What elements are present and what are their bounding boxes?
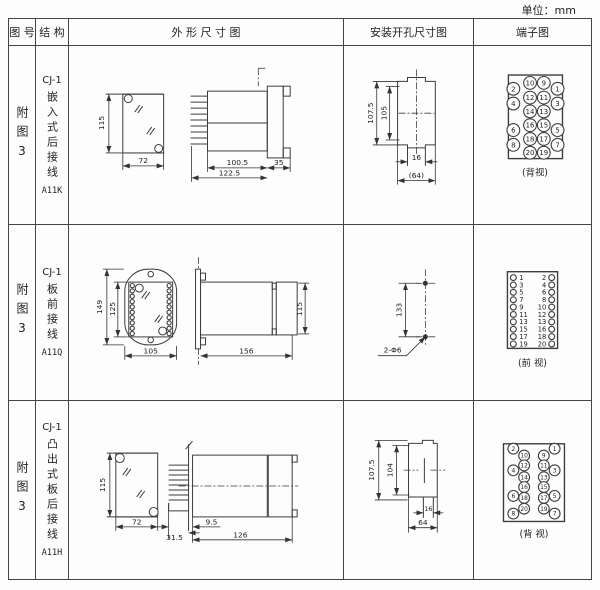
- terminal-pin: [130, 326, 134, 330]
- terminal-number: 17: [539, 135, 548, 143]
- terminal-number: 11: [539, 94, 548, 102]
- dim-label: 100.5: [227, 157, 249, 166]
- terminal-pin: 13: [537, 105, 550, 118]
- outline-drawing-a11h: 115 72: [69, 401, 343, 579]
- dim-label: 107.5: [366, 102, 375, 124]
- terminal-pin: 11: [537, 91, 550, 104]
- dim-label: 64: [418, 518, 428, 527]
- terminal-pin: 17: [537, 132, 550, 145]
- terminal-number: 1: [555, 85, 559, 93]
- dimension-156: 156: [201, 334, 293, 359]
- dim-label: 122.5: [219, 168, 241, 177]
- dim-label: 156: [239, 346, 254, 355]
- terminal-pin: [549, 318, 555, 324]
- terminal-diagram-a11q: (前 视) 1357911131517192468101213161820: [474, 225, 591, 401]
- terminal-pin: 18: [519, 492, 530, 503]
- terminal-number: 2: [511, 85, 515, 93]
- terminal-pin: [510, 296, 516, 302]
- terminal-pin: [167, 294, 171, 298]
- terminal-pin: 18: [524, 132, 537, 145]
- terminal-pin: [549, 282, 555, 288]
- terminal-number: 19: [519, 340, 528, 348]
- dim-label: 125: [108, 301, 117, 316]
- terminal-pin: [130, 299, 134, 303]
- terminal-pin: [130, 310, 134, 314]
- outline-row2: 149 125 105: [69, 225, 344, 401]
- outline-row1: 115 72: [69, 46, 344, 225]
- terminal-number: 8: [511, 512, 515, 518]
- header-mounting: 安装开孔尺寸图: [344, 19, 474, 46]
- terminal-number: 13: [540, 475, 548, 481]
- terminal-number: 13: [539, 107, 548, 115]
- terminal-number: 3: [553, 468, 557, 474]
- terminal-pin: 13: [538, 472, 549, 483]
- terminal-number: 12: [520, 464, 528, 470]
- terminal-diagram-a11k: (背视) 1091211141316151817201921436587: [474, 46, 591, 225]
- terminal-number: 16: [526, 121, 535, 129]
- terminal-pin: [130, 288, 134, 292]
- terminal-number: 2: [511, 447, 515, 453]
- terminal-number: 6: [511, 126, 515, 134]
- terminal-pin: 17: [538, 492, 549, 503]
- model-code: A11K: [42, 186, 62, 196]
- structure-name: 板前接线: [47, 283, 58, 343]
- terminal-pin: 8: [508, 508, 519, 519]
- terminal-pin: [549, 326, 555, 332]
- terminal-pin: [130, 331, 134, 335]
- terminal-number: 5: [555, 126, 559, 134]
- dim-label: 149: [95, 299, 104, 314]
- mounting-row2: 133 2-Φ6: [344, 225, 474, 401]
- dimension-115: 115: [97, 94, 109, 153]
- series-label: CJ-1: [42, 422, 62, 433]
- terminal-pin: 12: [524, 91, 537, 104]
- terminal-number: 11: [540, 464, 548, 470]
- terminal-number: 14: [520, 475, 528, 481]
- terminal-pin: 9: [538, 450, 549, 461]
- terminal-pin: 5: [551, 123, 564, 136]
- terminal-pin: [167, 310, 171, 314]
- dim-label: 16: [412, 152, 422, 161]
- terminal-pin: 15: [537, 118, 550, 131]
- dim-label: 72: [132, 517, 142, 526]
- terminal-pin: 16: [519, 482, 530, 493]
- terminal-pin: 20: [519, 503, 530, 514]
- dimension-35: 35: [267, 157, 290, 171]
- terminal-pin: [167, 288, 171, 292]
- terminal-pin: [130, 320, 134, 324]
- terminal-row3: (背 视) 2468135710121416182091113151719: [474, 401, 591, 579]
- dimension-105: 105: [380, 86, 400, 140]
- hole-callout: 2-Φ6: [378, 336, 426, 355]
- dimension-16: 16: [396, 152, 438, 161]
- terminal-pin: [510, 311, 516, 317]
- terminal-number: 10: [526, 79, 535, 87]
- terminal-pin: 20: [524, 146, 537, 159]
- model-code: A11H: [42, 548, 62, 558]
- terminal-number: 20: [526, 149, 535, 157]
- dimension-9-5: 9.5: [193, 517, 221, 526]
- dimension-31-5: 31.5: [158, 503, 200, 542]
- terminal-pin: [549, 341, 555, 347]
- fig-no-row3: 附图3: [9, 401, 36, 579]
- dim-label: 72: [138, 155, 148, 164]
- view-label: (背 视): [520, 528, 549, 540]
- dimension-115: 115: [98, 453, 110, 517]
- outline-drawing-a11q: 149 125 105: [69, 225, 343, 401]
- terminal-number: 1: [553, 447, 557, 453]
- terminal-pin: [130, 304, 134, 308]
- terminal-number: 4: [511, 100, 515, 108]
- terminal-pin: 7: [549, 508, 560, 519]
- terminal-pin: [167, 320, 171, 324]
- structure-row1: CJ-1 嵌入式后接线 A11K: [36, 46, 69, 225]
- terminal-pin: [167, 283, 171, 287]
- dim-label: 35: [274, 157, 284, 166]
- terminal-pin: 4: [508, 465, 519, 476]
- terminal-number: 16: [520, 485, 528, 491]
- dim-label: 2-Φ6: [384, 345, 402, 354]
- dim-label: 105: [144, 346, 159, 355]
- dimension-105: 105: [125, 345, 177, 359]
- header-fig-no: 图 号: [9, 19, 36, 46]
- terminal-number: 15: [540, 485, 548, 491]
- terminal-pin: 8: [507, 138, 520, 151]
- structure-name: 嵌入式后接线: [47, 91, 58, 181]
- terminal-number: 3: [555, 100, 559, 108]
- dim-label: 115: [98, 478, 107, 493]
- dim-label: 107.5: [367, 459, 376, 481]
- fig-no-text: 附图3: [16, 106, 28, 165]
- terminal-number: 15: [539, 121, 548, 129]
- dimension-table: 图 号 结 构 外 形 尺 寸 图 安装开孔尺寸图 端子图 附图3 CJ-1 嵌…: [8, 18, 592, 580]
- side-view: 9.5 31.5 126: [158, 441, 298, 543]
- terminal-number: 7: [553, 512, 557, 518]
- terminal-pin: 10: [524, 76, 537, 89]
- terminal-pin: 2: [507, 82, 520, 95]
- outline-row3: 115 72: [69, 401, 344, 579]
- terminal-number: 18: [526, 135, 535, 143]
- dim-label: 115: [295, 301, 304, 316]
- terminal-row2: (前 视) 1357911131517192468101213161820: [474, 225, 591, 401]
- terminal-number: 20: [538, 340, 547, 348]
- terminal-pin: [167, 331, 171, 335]
- terminal-pin: [549, 311, 555, 317]
- terminal-pin: [167, 315, 171, 319]
- dimension-72: 72: [116, 517, 158, 531]
- terminal-pin: 16: [524, 118, 537, 131]
- terminal-pin: [549, 333, 555, 339]
- mounting-drawing-a11k: 107.5 105 16 (64): [344, 46, 473, 225]
- terminal-pin: 3: [551, 97, 564, 110]
- terminal-pin: [130, 294, 134, 298]
- dim-label: 126: [233, 530, 248, 539]
- terminal-pin: [549, 289, 555, 295]
- drawing-sheet: 单位：mm 图 号 结 构 外 形 尺 寸 图 安装开孔尺寸图 端子图 附图3 …: [0, 0, 600, 590]
- dimension-72: 72: [123, 152, 164, 169]
- terminal-number: 18: [520, 496, 528, 502]
- fig-no-row2: 附图3: [9, 225, 36, 401]
- terminal-row1: (背视) 1091211141316151817201921436587: [474, 46, 591, 225]
- terminal-pin: 6: [507, 123, 520, 136]
- outline-drawing-a11k: 115 72: [69, 46, 343, 225]
- mounting-drawing-a11q: 133 2-Φ6: [344, 225, 473, 401]
- terminal-pin: [510, 326, 516, 332]
- dim-label: (64): [409, 171, 424, 180]
- terminal-pin: 19: [537, 146, 550, 159]
- mounting-drawing-a11h: 107.5 104 16 64: [344, 401, 473, 579]
- dimension-16: 16: [413, 505, 443, 513]
- terminal-number: 4: [511, 468, 515, 474]
- terminal-number: 8: [511, 141, 515, 149]
- terminal-pin: [510, 282, 516, 288]
- terminal-pin: 11: [538, 460, 549, 471]
- dim-label: 133: [395, 302, 404, 316]
- terminal-pin: [549, 274, 555, 280]
- terminal-pin: 10: [519, 450, 530, 461]
- model-code: A11Q: [42, 348, 62, 358]
- unit-label: 单位：mm: [522, 2, 576, 18]
- front-view: 115 72: [97, 94, 164, 170]
- terminal-number: 10: [520, 454, 528, 460]
- terminal-pin: 7: [551, 138, 564, 151]
- terminal-number: 14: [526, 107, 535, 115]
- structure-row2: CJ-1 板前接线 A11Q: [36, 225, 69, 401]
- header-outline: 外 形 尺 寸 图: [69, 19, 344, 46]
- terminal-pin: 2: [508, 443, 519, 454]
- terminal-pin: 6: [508, 490, 519, 501]
- terminal-number: 20: [520, 507, 528, 513]
- terminal-pin: [510, 333, 516, 339]
- fig-no-text: 附图3: [16, 461, 28, 520]
- dim-label: 31.5: [166, 533, 183, 542]
- terminal-number: 17: [540, 496, 548, 502]
- front-view: 115 72: [98, 453, 158, 531]
- header-terminal: 端子图: [474, 19, 591, 46]
- terminal-number: 9: [542, 454, 546, 460]
- side-view: 156 115: [196, 257, 310, 365]
- terminal-pin: 14: [524, 105, 537, 118]
- terminal-pin: 1: [549, 443, 560, 454]
- terminal-pin: [130, 315, 134, 319]
- dim-label: 115: [97, 115, 106, 130]
- header-structure: 结 构: [36, 19, 69, 46]
- terminal-pin: [510, 274, 516, 280]
- terminal-pin: 19: [538, 503, 549, 514]
- terminal-pin: [549, 296, 555, 302]
- front-view: 149 125 105: [95, 269, 177, 360]
- view-label: (前 视): [518, 357, 547, 369]
- terminal-diagram-a11h: (背 视) 2468135710121416182091113151719: [474, 401, 591, 579]
- terminal-pin: 9: [537, 76, 550, 89]
- terminal-pin: 12: [519, 460, 530, 471]
- terminal-pin: 4: [507, 97, 520, 110]
- side-view: 100.5 35 122.5: [191, 68, 291, 182]
- terminal-pin: [167, 299, 171, 303]
- terminal-pin: 15: [538, 482, 549, 493]
- mounting-row3: 107.5 104 16 64: [344, 401, 474, 579]
- dim-label: 9.5: [206, 517, 218, 526]
- terminal-pin: 1: [551, 82, 564, 95]
- terminal-pin: [549, 304, 555, 310]
- terminal-pin: [130, 283, 134, 287]
- mounting-row1: 107.5 105 16 (64): [344, 46, 474, 225]
- dim-label: 105: [380, 105, 389, 119]
- terminal-pin: [510, 289, 516, 295]
- terminal-number: 9: [542, 79, 546, 87]
- terminal-pin: [167, 304, 171, 308]
- dim-label: 16: [424, 505, 432, 513]
- terminal-pin: [167, 326, 171, 330]
- terminal-number: 5: [553, 494, 557, 500]
- terminal-pin: 3: [549, 465, 560, 476]
- pins: [169, 465, 189, 511]
- view-label: (背视): [522, 166, 548, 178]
- terminal-pin: [510, 341, 516, 347]
- dimension-133: 133: [395, 283, 420, 337]
- pins: [191, 96, 208, 144]
- series-label: CJ-1: [42, 267, 62, 278]
- terminal-number: 12: [526, 94, 535, 102]
- fig-no-row1: 附图3: [9, 46, 36, 225]
- terminal-pin: 5: [549, 490, 560, 501]
- terminal-number: 19: [539, 149, 548, 157]
- structure-name: 凸出式板后接线: [47, 438, 58, 543]
- terminal-number: 6: [511, 494, 515, 500]
- dim-label: 104: [386, 463, 395, 477]
- terminal-number: 7: [555, 141, 559, 149]
- terminal-pin: 14: [519, 472, 530, 483]
- fig-no-text: 附图3: [16, 283, 28, 342]
- series-label: CJ-1: [42, 75, 62, 86]
- terminal-number: 19: [540, 507, 548, 513]
- structure-row3: CJ-1 凸出式板后接线 A11H: [36, 401, 69, 579]
- terminal-pin: [510, 304, 516, 310]
- terminal-pin: [510, 318, 516, 324]
